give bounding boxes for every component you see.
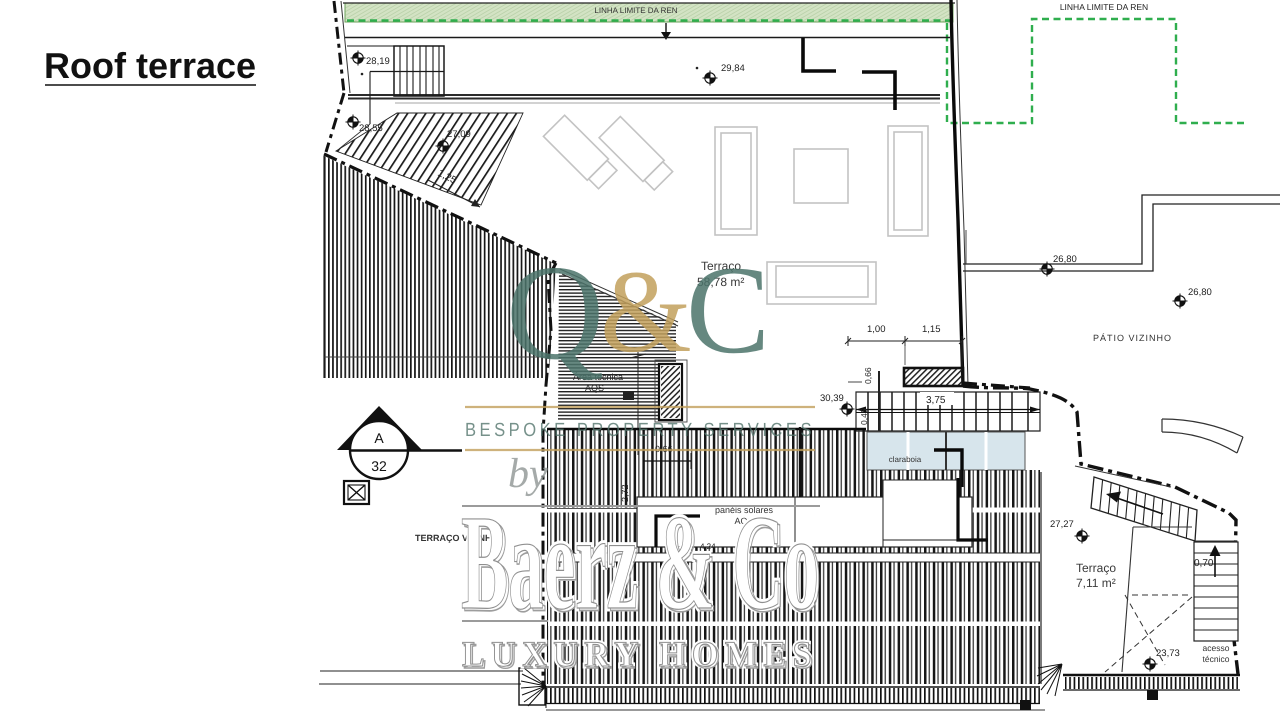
svg-text:32: 32 (371, 458, 387, 474)
svg-text:técnico: técnico (1203, 654, 1230, 664)
svg-text:A: A (374, 430, 384, 446)
svg-text:&: & (600, 246, 692, 377)
svg-text:acesso: acesso (1203, 643, 1230, 653)
svg-text:1,15: 1,15 (922, 324, 941, 335)
svg-text:7,11 m²: 7,11 m² (1076, 576, 1116, 590)
svg-text:0,66: 0,66 (863, 367, 873, 384)
svg-text:LINHA LIMITE DA REN: LINHA LIMITE DA REN (594, 6, 677, 15)
svg-text:1,00: 1,00 (867, 324, 886, 335)
svg-text:26,80: 26,80 (1053, 254, 1077, 265)
svg-text:C: C (686, 241, 770, 380)
svg-text:23,73: 23,73 (1156, 648, 1180, 659)
svg-text:28,55: 28,55 (359, 123, 383, 134)
svg-text:29,84: 29,84 (721, 63, 745, 74)
svg-text:3,75: 3,75 (926, 395, 946, 406)
svg-text:0,70: 0,70 (1194, 558, 1214, 569)
svg-text:claraboia: claraboia (889, 455, 922, 464)
svg-text:30,39: 30,39 (820, 393, 844, 404)
svg-text:Terraço: Terraço (1076, 561, 1116, 575)
svg-text:26,80: 26,80 (1188, 287, 1212, 298)
svg-text:LINHA LIMITE DA REN: LINHA LIMITE DA REN (1060, 2, 1148, 12)
svg-text:Baerz & Co: Baerz & Co (461, 488, 819, 638)
svg-text:Roof terrace: Roof terrace (44, 45, 256, 86)
svg-text:27,27: 27,27 (1050, 519, 1074, 530)
svg-text:27,09: 27,09 (447, 129, 471, 140)
svg-text:Q: Q (506, 238, 604, 388)
svg-text:LUXURY HOMES: LUXURY HOMES (462, 634, 818, 674)
svg-text:0,45: 0,45 (859, 408, 869, 425)
svg-text:BESPOKE PROPERTY SERVICES: BESPOKE PROPERTY SERVICES (465, 420, 815, 441)
svg-text:PÁTIO VIZINHO: PÁTIO VIZINHO (1093, 333, 1172, 343)
svg-text:28,19: 28,19 (366, 56, 390, 67)
